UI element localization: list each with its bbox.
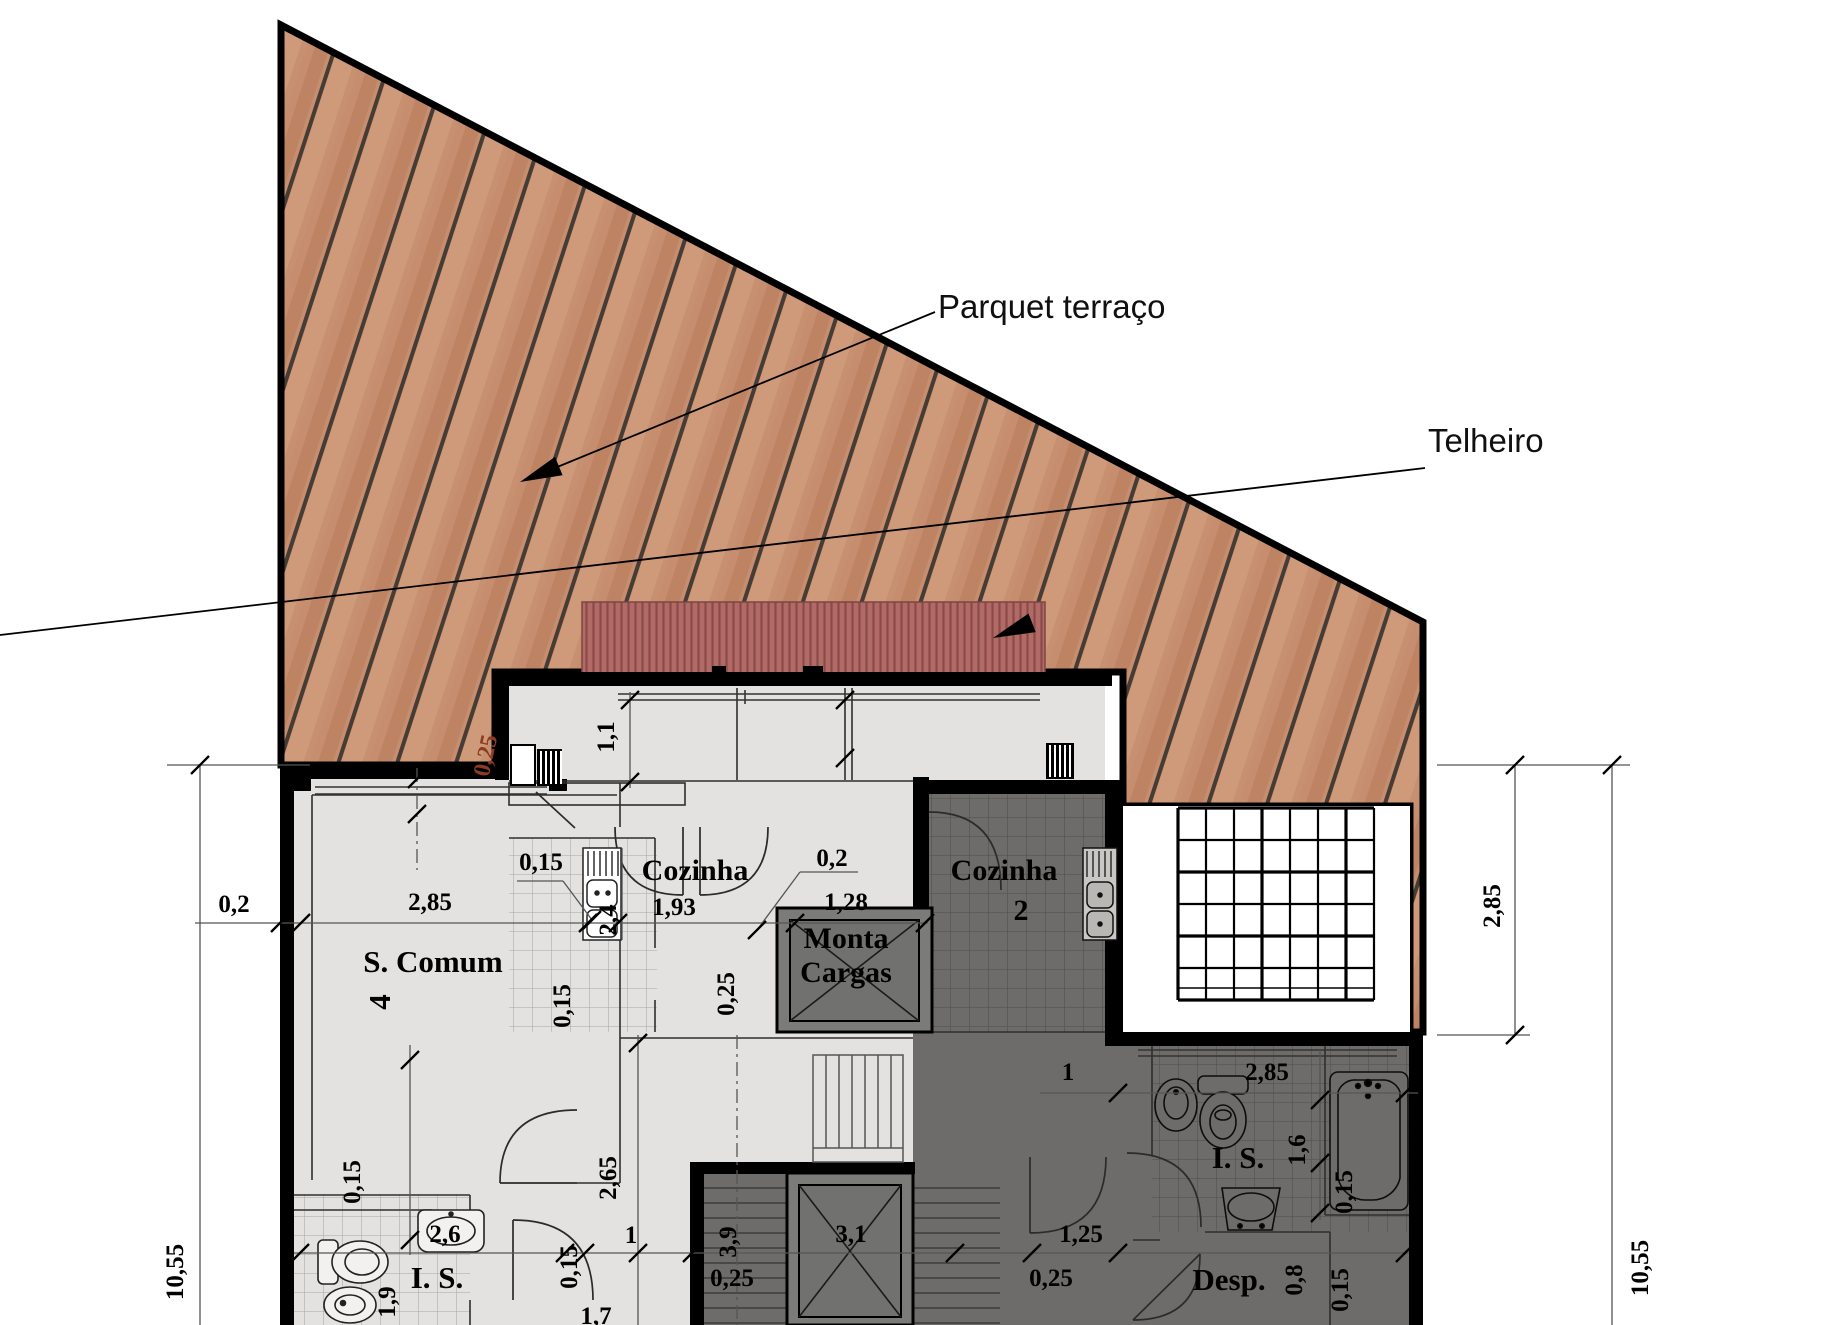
dim-0-15-e: 0,15 [556,1245,583,1289]
room-cozinha-2-number: 2 [1014,894,1029,927]
dim-1-93: 1,93 [652,894,696,921]
dim-0-2-left: 0,2 [218,891,249,918]
elevator-shaft [787,1173,913,1325]
room-s-comum-number: 4 [362,994,397,1010]
dim-1-b: 1 [625,1222,638,1249]
dim-0-25-c: 0,25 [710,1265,754,1292]
dim-2-85-right: 2,85 [1479,884,1506,928]
dim-1-6: 1,6 [1284,1134,1311,1165]
dim-0-15-c: 0,15 [1331,1170,1358,1214]
dim-2-65: 2,65 [595,1156,622,1200]
dim-2-85-scomum: 2,85 [408,889,452,916]
floor-plan-sheet: Parquet terraço Telheiro S. Comum 4 Cozi… [0,0,1842,1325]
dim-0-15-f: 0,15 [339,1160,366,1204]
dim-3-1: 3,1 [835,1221,866,1248]
dim-0-25-a: 0,25 [713,972,740,1016]
dim-1-7: 1,7 [580,1303,611,1325]
dim-1-a: 1 [1062,1059,1075,1086]
dim-1-25: 1,25 [1059,1221,1103,1248]
dim-0-8: 0,8 [1281,1264,1308,1295]
dim-2-4: 2,4 [595,904,622,936]
room-desp: Desp. [1192,1262,1265,1297]
dim-0-2-center: 0,2 [816,845,847,872]
dim-2-85-dark: 2,85 [1245,1059,1289,1086]
room-cozinha-1: Cozinha [642,854,749,887]
pergola-grid [1123,806,1410,1032]
dim-0-25-b: 0,25 [1029,1265,1073,1292]
parquet-terraco-label: Parquet terraço [938,288,1165,325]
kitchen-sink-dark [1083,848,1117,940]
dim-3-9: 3,9 [715,1226,742,1257]
dim-2-6: 2,6 [429,1221,460,1248]
dim-1-9: 1,9 [374,1286,401,1317]
dim-0-15-b: 0,15 [549,984,576,1028]
dim-1-1: 1,1 [593,721,620,752]
room-monta-cargas-line1: Monta [804,922,889,955]
dim-0-15-d: 0,15 [1327,1268,1354,1312]
dim-1-28: 1,28 [824,889,868,916]
room-is-light: I. S. [411,1260,464,1295]
dim-10-55-left: 10,55 [162,1244,189,1300]
shed-roof [582,602,1045,677]
telheiro-label: Telheiro [1428,422,1544,459]
dim-0-15-a: 0,15 [519,849,563,876]
room-cozinha-2: Cozinha [951,854,1058,887]
room-monta-cargas-line2: Cargas [800,956,892,989]
room-is-dark: I. S. [1212,1140,1265,1175]
floor-plan-drawing: Parquet terraço Telheiro S. Comum 4 Cozi… [0,0,1842,1325]
dim-10-55-right: 10,55 [1627,1240,1654,1296]
room-s-comum: S. Comum [363,944,503,979]
